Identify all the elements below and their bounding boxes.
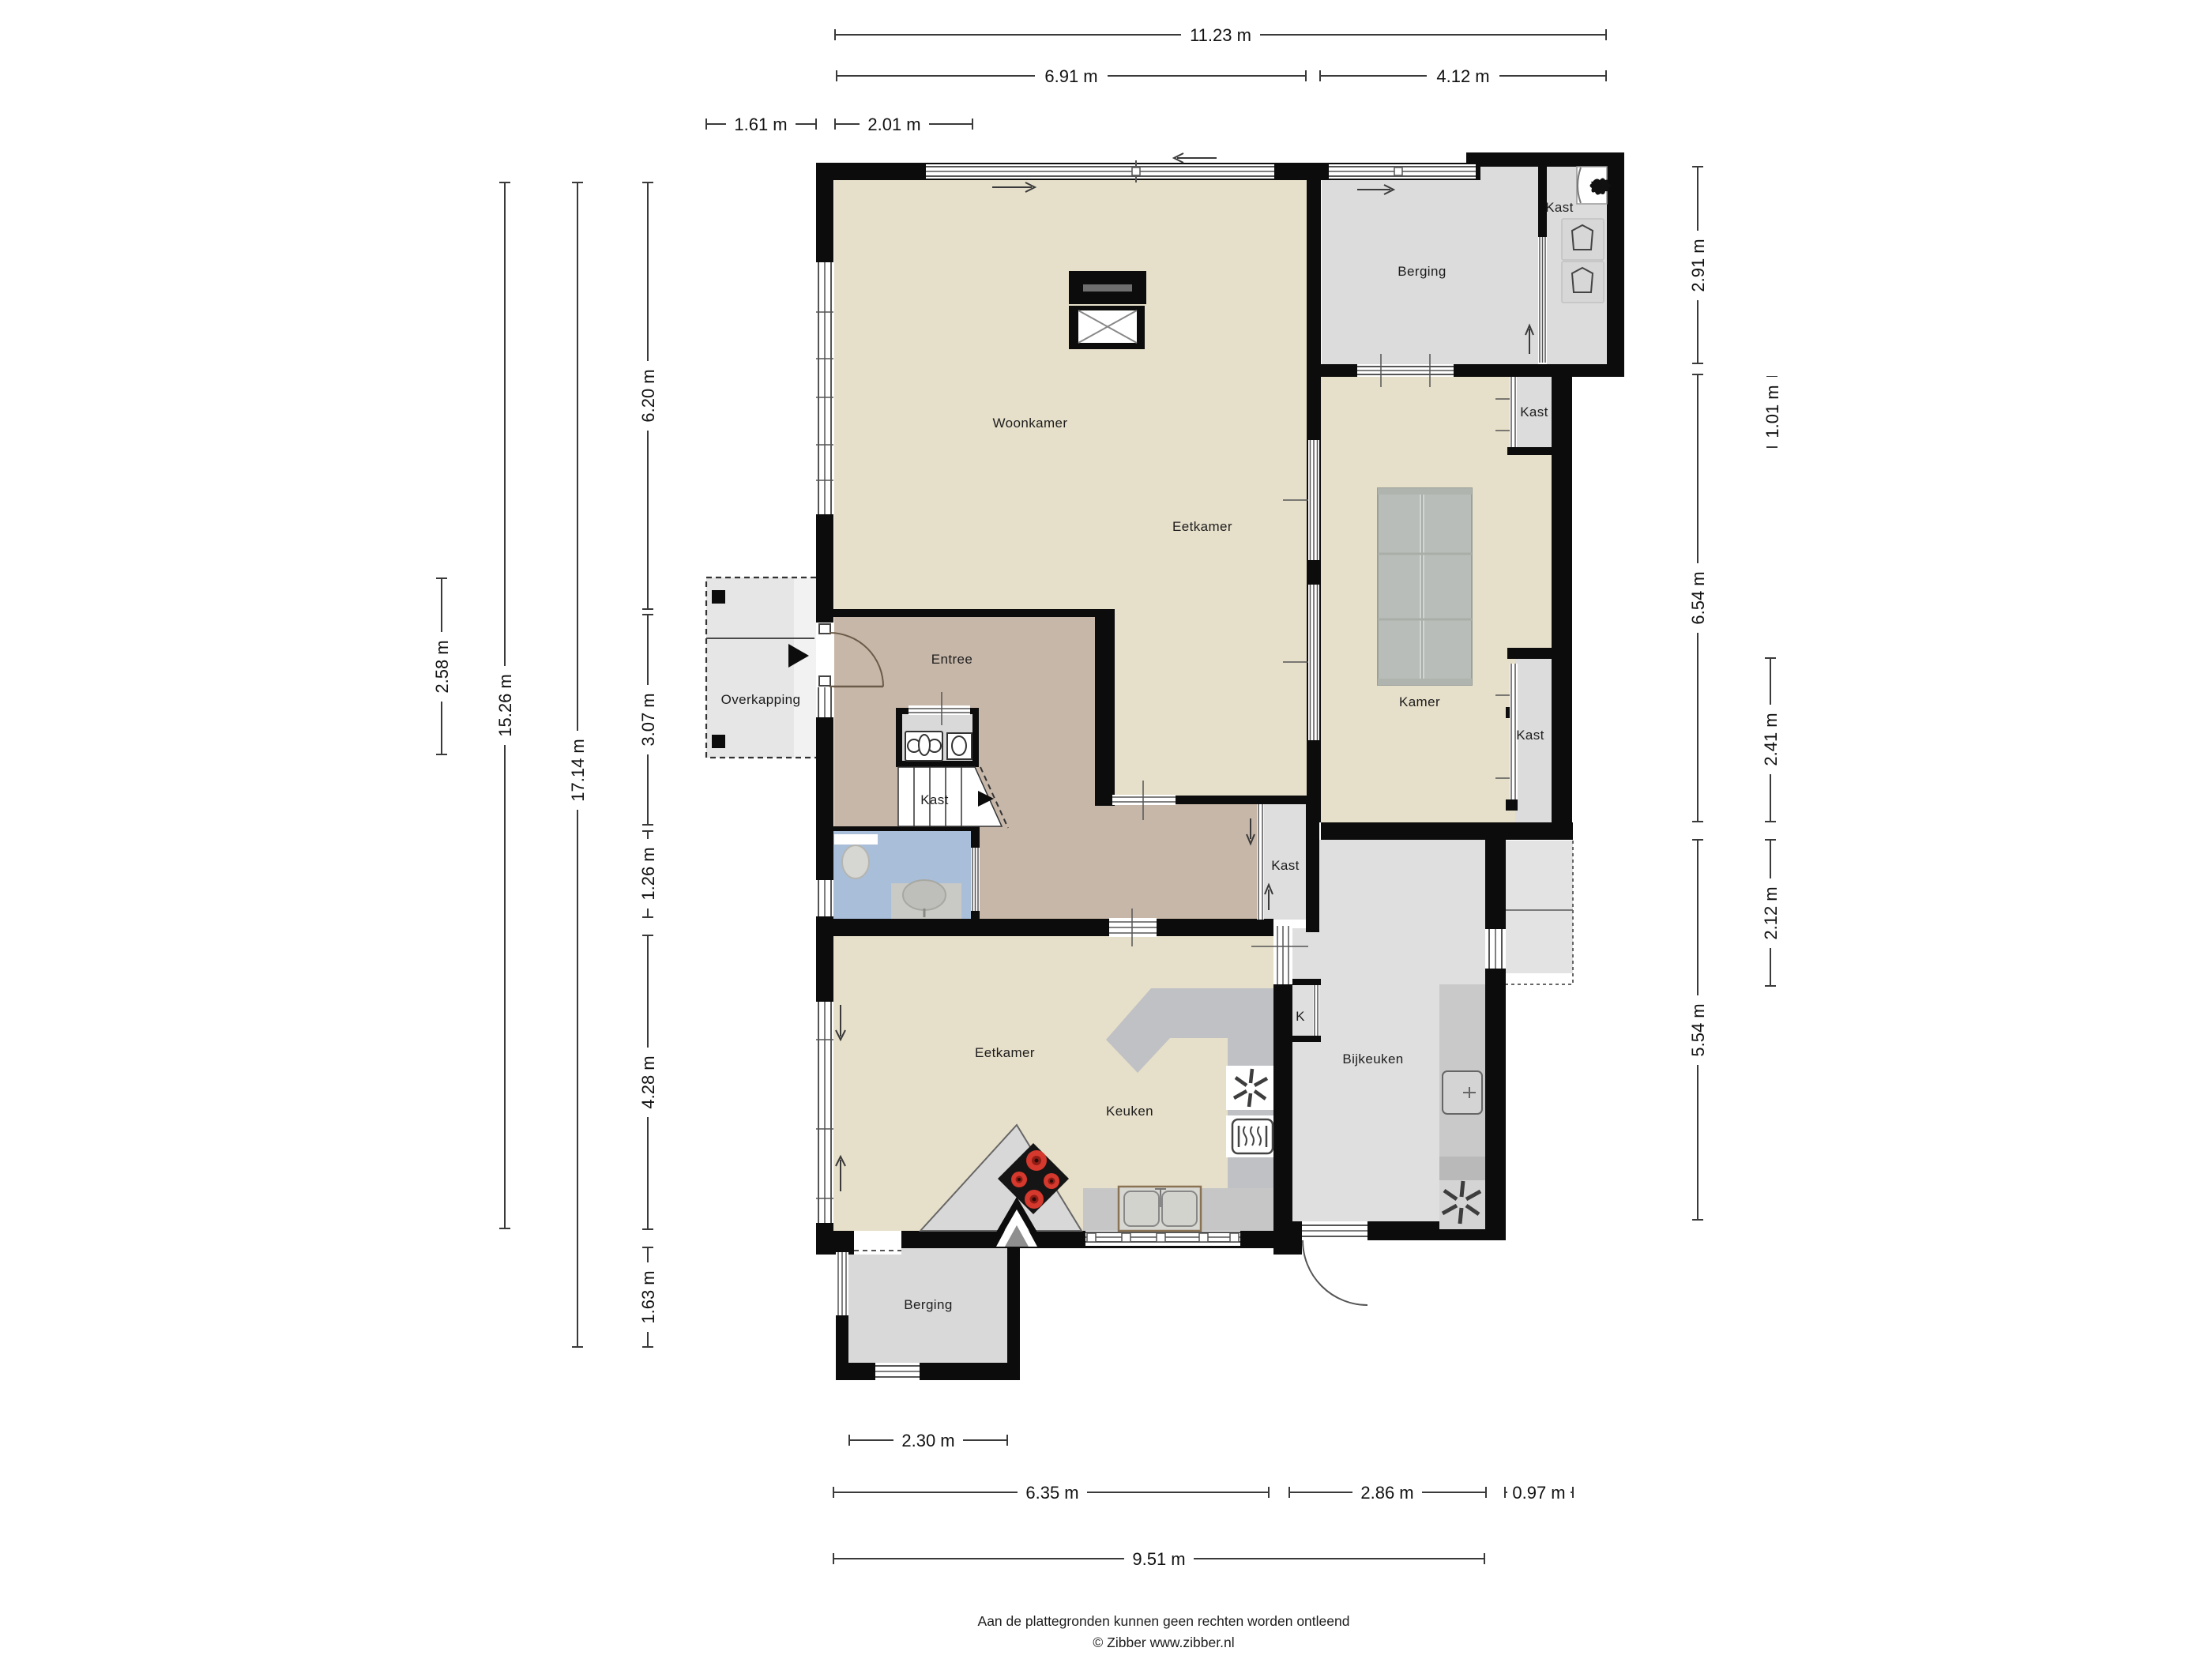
svg-text:6.35 m: 6.35 m xyxy=(1025,1483,1078,1503)
svg-text:4.12 m: 4.12 m xyxy=(1436,66,1489,86)
svg-text:2.86 m: 2.86 m xyxy=(1360,1483,1413,1503)
svg-text:2.12 m: 2.12 m xyxy=(1761,886,1781,939)
svg-text:Kast: Kast xyxy=(1271,858,1300,873)
svg-text:Kast: Kast xyxy=(1520,404,1548,419)
svg-text:6.20 m: 6.20 m xyxy=(638,369,658,422)
svg-text:2.01 m: 2.01 m xyxy=(867,115,920,134)
svg-text:3.07 m: 3.07 m xyxy=(638,693,658,746)
svg-text:Overkapping: Overkapping xyxy=(721,692,801,707)
svg-text:Berging: Berging xyxy=(904,1297,952,1312)
svg-text:1.63 m: 1.63 m xyxy=(638,1270,658,1323)
svg-text:Eetkamer: Eetkamer xyxy=(1172,519,1232,534)
svg-text:© Zibber www.zibber.nl: © Zibber www.zibber.nl xyxy=(1093,1635,1234,1650)
svg-text:Kast: Kast xyxy=(1516,728,1544,743)
svg-text:9.51 m: 9.51 m xyxy=(1132,1549,1185,1569)
svg-text:Kast: Kast xyxy=(1545,200,1574,215)
svg-text:6.54 m: 6.54 m xyxy=(1688,571,1708,624)
svg-text:4.28 m: 4.28 m xyxy=(638,1055,658,1108)
svg-text:5.54 m: 5.54 m xyxy=(1688,1003,1708,1056)
svg-text:6.91 m: 6.91 m xyxy=(1044,66,1097,86)
svg-text:Woonkamer: Woonkamer xyxy=(993,416,1068,431)
svg-text:Berging: Berging xyxy=(1398,264,1446,279)
svg-text:Eetkamer: Eetkamer xyxy=(975,1045,1035,1060)
svg-text:K: K xyxy=(1296,1009,1305,1024)
svg-text:Kamer: Kamer xyxy=(1399,694,1440,709)
svg-text:1.26 m: 1.26 m xyxy=(638,847,658,900)
svg-text:Aan de plattegronden kunnen ge: Aan de plattegronden kunnen geen rechten… xyxy=(978,1613,1350,1629)
svg-text:Entree: Entree xyxy=(931,652,973,667)
svg-text:17.14 m: 17.14 m xyxy=(568,739,588,802)
svg-text:11.23 m: 11.23 m xyxy=(1190,25,1251,45)
svg-text:1.61 m: 1.61 m xyxy=(734,115,787,134)
svg-text:15.26 m: 15.26 m xyxy=(495,674,515,737)
svg-text:2.30 m: 2.30 m xyxy=(901,1431,954,1450)
svg-text:Kast: Kast xyxy=(920,792,949,807)
svg-text:Bijkeuken: Bijkeuken xyxy=(1342,1051,1403,1066)
svg-text:2.58 m: 2.58 m xyxy=(432,640,452,693)
svg-text:2.41 m: 2.41 m xyxy=(1761,713,1781,766)
svg-text:Keuken: Keuken xyxy=(1106,1104,1153,1119)
svg-text:2.91 m: 2.91 m xyxy=(1688,239,1708,292)
svg-text:1.01 m: 1.01 m xyxy=(1762,385,1782,438)
svg-text:0.97 m: 0.97 m xyxy=(1512,1483,1565,1503)
